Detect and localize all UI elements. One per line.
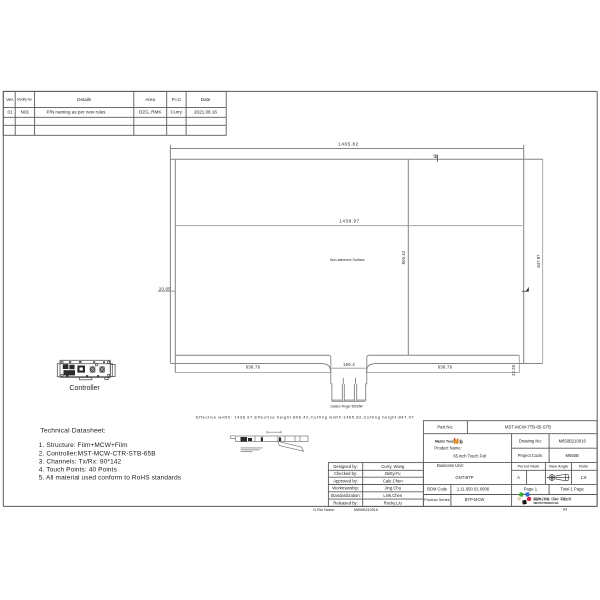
svg-text:Curry, Wang: Curry, Wang [381, 464, 405, 469]
svg-text:806.42: 806.42 [401, 250, 406, 264]
svg-text:DZG, RMK: DZG, RMK [139, 109, 162, 114]
svg-text:1. Structure: Film+MCW+Film: 1. Structure: Film+MCW+Film [39, 442, 128, 449]
svg-text:1465.82: 1465.82 [338, 142, 358, 147]
svg-text:A3: A3 [563, 508, 567, 512]
svg-text:Drawing No:: Drawing No: [519, 439, 542, 444]
svg-text:4. Touch Points: 40 Points: 4. Touch Points: 40 Points [39, 467, 118, 474]
svg-text:Product Series: Product Series [424, 497, 450, 502]
svg-text:Area: Area [145, 97, 155, 102]
svg-text:A: A [517, 475, 520, 480]
svg-text:M650B210016: M650B210016 [354, 508, 378, 512]
svg-text:Technical Datasheet:: Technical Datasheet: [40, 427, 106, 434]
svg-text:65 inch Touch Foil: 65 inch Touch Foil [453, 453, 486, 458]
svg-text:1438.97: 1438.97 [339, 219, 359, 224]
svg-text:MST-MCW-7TB-65-STB: MST-MCW-7TB-65-STB [505, 425, 551, 430]
svg-text:Released by:: Released by: [333, 500, 357, 505]
svg-text:M650B210016: M650B210016 [559, 439, 587, 444]
svg-text:Date: Date [201, 97, 211, 102]
svg-text:GNT-BTP: GNT-BTP [455, 475, 473, 480]
svg-text:Standardization:: Standardization: [330, 493, 360, 498]
svg-text:Checked by:: Checked by: [334, 471, 357, 476]
svg-text:1.11.650.01.0006: 1.11.650.01.0006 [457, 487, 490, 492]
svg-text:5. All material used conform t: 5. All material used conform to RoHS sta… [39, 474, 182, 481]
svg-text:P.I.C: P.I.C [172, 97, 182, 102]
svg-text:Part No:: Part No: [437, 425, 453, 430]
svg-text:Approved by:: Approved by: [333, 478, 358, 483]
svg-text:Workmanship:: Workmanship: [332, 486, 359, 491]
svg-text:847.97: 847.97 [536, 254, 541, 268]
svg-text:2021.08.16: 2021.08.16 [194, 109, 217, 114]
svg-text:Master Touch: Master Touch [435, 439, 456, 443]
svg-text:Modify No.: Modify No. [17, 97, 33, 101]
svg-text:P/N naming as per new rules: P/N naming as per new rules [47, 109, 107, 114]
svg-text:159.4: 159.4 [343, 362, 355, 367]
svg-text:Controller: Controller [69, 385, 100, 392]
svg-text:22.29: 22.29 [511, 365, 516, 376]
svg-text:Product Name:: Product Name: [434, 446, 461, 451]
svg-text:01: 01 [8, 109, 14, 114]
svg-text:N01: N01 [21, 109, 30, 114]
svg-text:Curry: Curry [171, 109, 183, 114]
svg-text:2. Controller:MST-MCW-CTR-STB-: 2. Controller:MST-MCW-CTR-STB-65B [39, 451, 156, 458]
svg-text:BTP-MCW: BTP-MCW [465, 497, 485, 502]
svg-text:Project Code:: Project Code: [518, 453, 543, 458]
svg-text:20.85: 20.85 [159, 287, 171, 292]
svg-text:G-File Name:: G-File Name: [313, 508, 335, 512]
svg-text:BOM Code: BOM Code [427, 487, 448, 492]
svg-text:Period Mark: Period Mark [518, 464, 540, 469]
svg-text:Effective width: 1438.97,Effec: Effective width: 1438.97,Effective heigh… [196, 415, 414, 420]
svg-text:SINOTECTRONICS INC: SINOTECTRONICS INC [533, 503, 558, 505]
svg-text:Business Unit:: Business Unit: [437, 463, 464, 468]
svg-text:Rolls: Rolls [579, 464, 588, 469]
svg-text:638.79: 638.79 [246, 365, 261, 370]
svg-text:Golden Finger 550SNF: Golden Finger 550SNF [330, 404, 363, 408]
svg-text:Details: Details [77, 97, 92, 102]
svg-text:Ver.: Ver. [6, 97, 14, 102]
svg-text:3. Channels: Tx/Rx: 80*142: 3. Channels: Tx/Rx: 80*142 [39, 459, 122, 466]
svg-text:Link.Chen: Link.Chen [383, 493, 403, 498]
svg-text:1:8: 1:8 [581, 475, 587, 480]
svg-text:Rocky.Liu: Rocky.Liu [384, 500, 403, 505]
svg-text:Page 1: Page 1 [524, 487, 538, 492]
svg-text:Cale.Chen: Cale.Chen [383, 478, 403, 483]
svg-text:View Angle: View Angle [548, 464, 568, 469]
svg-text:Non-adhesive Surface: Non-adhesive Surface [330, 258, 365, 262]
svg-text:638.79: 638.79 [438, 365, 453, 370]
svg-text:Total 1 Page: Total 1 Page [561, 487, 585, 492]
svg-text:M650B: M650B [566, 453, 579, 458]
svg-text:Betty.Fu: Betty.Fu [385, 471, 401, 476]
svg-text:Designed by:: Designed by: [333, 464, 357, 469]
svg-text:Jing.Chu: Jing.Chu [385, 486, 402, 491]
svg-text:超越电子科技（苏州）有限公司: 超越电子科技（苏州）有限公司 [532, 497, 571, 501]
